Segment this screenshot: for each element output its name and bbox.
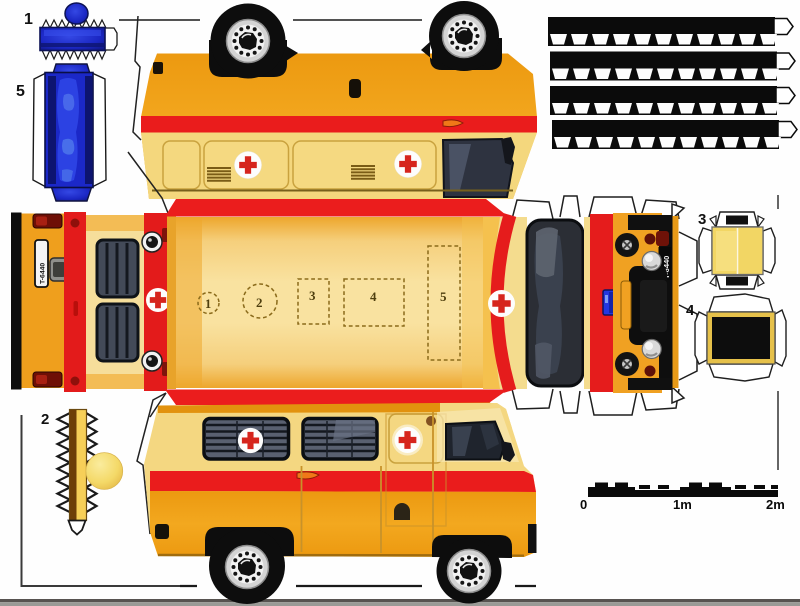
svg-text:2: 2 bbox=[256, 295, 263, 310]
svg-text:4: 4 bbox=[686, 302, 695, 319]
svg-text:2: 2 bbox=[41, 411, 49, 428]
svg-text:4: 4 bbox=[370, 289, 377, 304]
svg-text:0: 0 bbox=[580, 497, 587, 512]
svg-text:1: 1 bbox=[205, 297, 211, 311]
svg-text:1: 1 bbox=[24, 11, 33, 28]
svg-text:1m: 1m bbox=[673, 497, 692, 512]
svg-text:3: 3 bbox=[309, 288, 316, 303]
svg-text:5: 5 bbox=[16, 83, 25, 100]
svg-text:T-6440: T-6440 bbox=[40, 263, 47, 284]
svg-text:2m: 2m bbox=[766, 497, 785, 512]
svg-text:3: 3 bbox=[698, 211, 706, 228]
svg-text:5: 5 bbox=[440, 289, 447, 304]
